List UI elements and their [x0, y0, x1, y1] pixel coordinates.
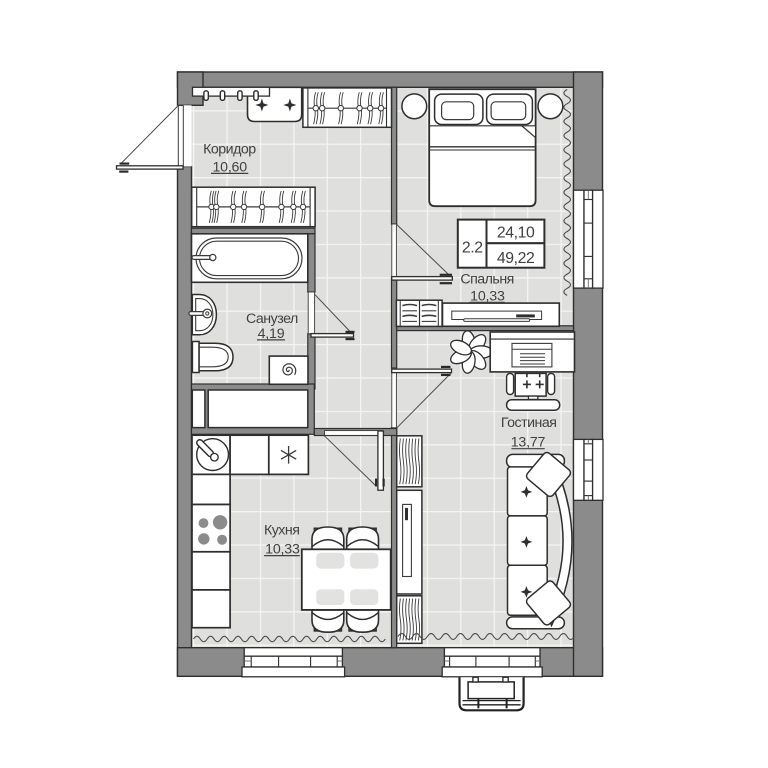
svg-text:2.2: 2.2 — [462, 240, 483, 257]
svg-text:Санузел: Санузел — [246, 311, 298, 327]
svg-text:Спальня: Спальня — [460, 271, 514, 287]
svg-text:Гостиная: Гостиная — [501, 415, 557, 431]
svg-text:Коридор: Коридор — [203, 142, 256, 158]
svg-text:49,22: 49,22 — [497, 250, 535, 267]
svg-text:Кухня: Кухня — [264, 523, 299, 539]
svg-text:24,10: 24,10 — [497, 225, 535, 242]
